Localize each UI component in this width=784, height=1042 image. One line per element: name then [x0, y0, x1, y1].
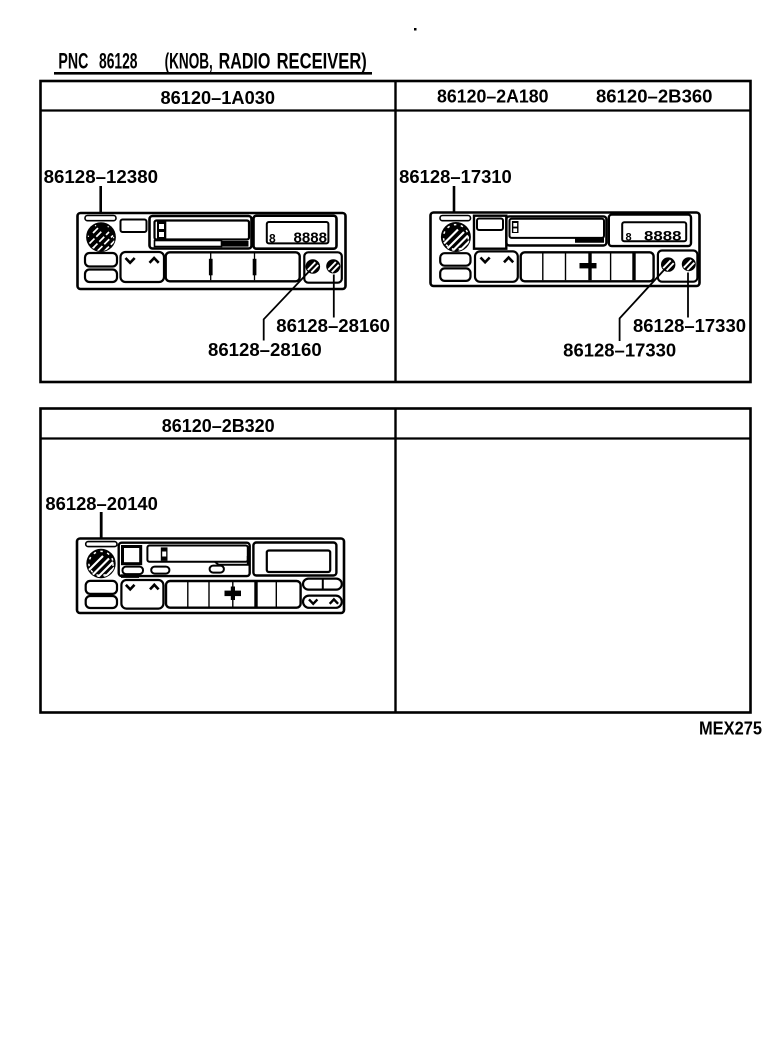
- svg-text:86128–20140: 86128–20140: [45, 494, 157, 514]
- svg-text:86128: 86128: [99, 49, 138, 74]
- svg-text:8: 8: [269, 232, 276, 246]
- svg-text:86120–2B320: 86120–2B320: [162, 416, 275, 436]
- svg-text:8: 8: [626, 232, 632, 244]
- svg-text:86128–17330: 86128–17330: [563, 341, 676, 361]
- svg-text:86128–28160: 86128–28160: [208, 340, 322, 360]
- svg-text:PNC: PNC: [58, 49, 88, 74]
- svg-text:86128–28160: 86128–28160: [276, 316, 390, 336]
- svg-text:RECEIVER): RECEIVER): [277, 49, 367, 74]
- svg-text:86128–17330: 86128–17330: [633, 316, 746, 336]
- svg-text:(KNOB,: (KNOB,: [165, 49, 213, 74]
- svg-text:RADIO: RADIO: [219, 49, 271, 74]
- svg-text:86128–12380: 86128–12380: [44, 167, 158, 187]
- svg-text:86120–1A030: 86120–1A030: [161, 88, 276, 108]
- svg-text:8888: 8888: [294, 230, 328, 247]
- svg-text:86128–17310: 86128–17310: [399, 167, 512, 187]
- svg-text:MEX275: MEX275: [699, 719, 762, 739]
- svg-text:86120–2B360: 86120–2B360: [596, 87, 713, 107]
- svg-text:8888: 8888: [644, 229, 682, 244]
- svg-text:86120–2A180: 86120–2A180: [437, 87, 549, 107]
